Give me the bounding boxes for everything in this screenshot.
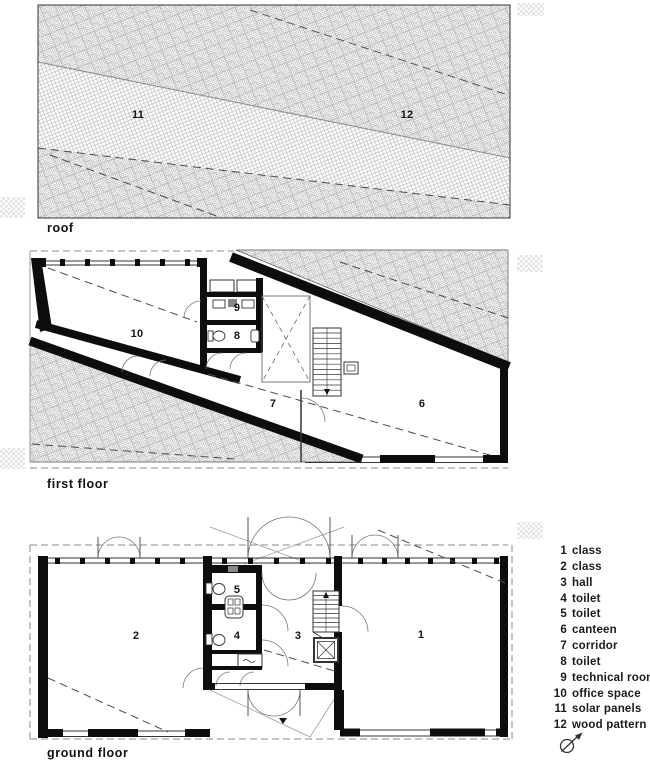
caption-first-floor: first floor [47, 477, 108, 491]
door-arc [262, 605, 288, 666]
architectural-drawing: 11 12 10 9 8 7 6 2 5 4 3 1 roof first fl… [0, 0, 650, 762]
room-label-toilet-8: 8 [234, 330, 240, 342]
legend-item: 10office space [552, 687, 650, 703]
first-floor-plan [30, 250, 509, 468]
north-arrow-icon [561, 733, 583, 753]
roof-plan [38, 5, 510, 218]
door-arc [342, 606, 368, 632]
overhang-outline [30, 545, 512, 739]
shaft [344, 362, 358, 374]
legend-item: 9technical room [552, 671, 650, 687]
sink [242, 300, 254, 308]
legend-item: 1class [552, 544, 650, 560]
stair-first-floor [313, 328, 341, 396]
legend-item: 12wood pattern [552, 718, 650, 734]
cabinet [237, 280, 258, 292]
room-label-toilet-4: 4 [234, 630, 240, 642]
room-label-solar-panels: 11 [132, 109, 144, 121]
wall-east [500, 556, 508, 737]
room-label-class-1: 1 [418, 629, 424, 641]
toilet-fixture [213, 635, 225, 646]
legend-item: 7corridor [552, 639, 650, 655]
legend-item: 11solar panels [552, 702, 650, 718]
north-facade [38, 517, 508, 564]
legend: 1class 2class 3hall 4toilet 5toilet 6can… [552, 544, 650, 734]
vestibule-door-arcs [262, 573, 316, 600]
porch-door-arcs [248, 690, 300, 716]
room-label-hall: 3 [295, 630, 301, 642]
elevator [314, 638, 338, 662]
legend-item: 8toilet [552, 655, 650, 671]
door-arc [206, 353, 246, 369]
door-arc [301, 398, 325, 422]
room-label-toilet-5: 5 [234, 584, 240, 596]
toilet-fixture [213, 331, 225, 341]
void-over-hall [262, 296, 310, 382]
room-label-class-2: 2 [133, 630, 139, 642]
room-label-wood-pattern: 12 [401, 109, 414, 121]
wall-west [38, 556, 48, 738]
legend-item: 6canteen [552, 623, 650, 639]
entrance-porch [210, 690, 340, 737]
cleaning-sink [238, 654, 262, 668]
ground-floor-plan [30, 517, 512, 739]
caption-roof: roof [47, 221, 74, 235]
room-label-corridor: 7 [270, 398, 276, 410]
toilet-fixture [213, 584, 225, 595]
legend-item: 5toilet [552, 607, 650, 623]
class-room-2 [38, 556, 212, 737]
legend-item: 4toilet [552, 592, 650, 608]
legend-item: 2class [552, 560, 650, 576]
room-label-technical: 9 [234, 302, 240, 314]
technical-toilet-block [205, 278, 263, 369]
urinal-fixture [251, 330, 259, 342]
window-band [380, 455, 508, 463]
cabinet [210, 280, 234, 292]
window-band [38, 729, 210, 737]
door-arc [183, 668, 203, 688]
door-arc [184, 301, 201, 318]
legend-item: 3hall [552, 576, 650, 592]
room-label-office: 10 [131, 328, 144, 340]
sink [213, 300, 225, 308]
room-label-canteen: 6 [419, 398, 425, 410]
wall-east [500, 362, 508, 457]
caption-ground-floor: ground floor [47, 746, 129, 760]
